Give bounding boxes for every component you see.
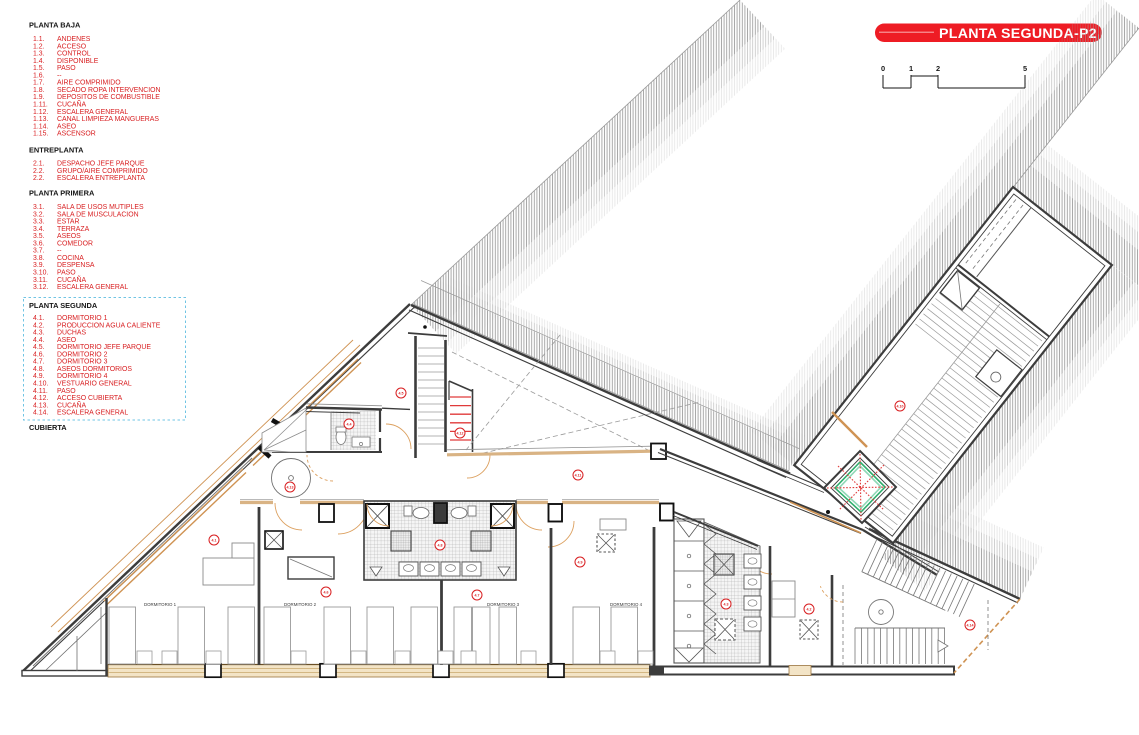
svg-text:1.9.: 1.9. [33,94,45,101]
svg-text:DISPONIBLE: DISPONIBLE [57,58,99,65]
svg-text:4.7: 4.7 [475,593,480,597]
svg-text:1: 1 [909,64,913,73]
svg-text:ASEO: ASEO [57,337,77,344]
svg-text:3.3.: 3.3. [33,219,45,226]
svg-text:4.3: 4.3 [724,602,729,606]
svg-text:1.12.: 1.12. [33,109,48,116]
svg-text:1.7.: 1.7. [33,80,45,87]
svg-text:2: 2 [936,64,940,73]
svg-text:DESPACHO JEFE PARQUE: DESPACHO JEFE PARQUE [57,161,145,168]
svg-text:DUCHAS: DUCHAS [57,330,87,337]
svg-text:4.12: 4.12 [457,431,464,435]
svg-text:1.6.: 1.6. [33,72,45,79]
svg-text:ESCALERA GENERAL: ESCALERA GENERAL [57,410,128,417]
svg-text:PASO: PASO [57,388,76,395]
svg-text:4.9: 4.9 [578,560,583,564]
svg-text:PLANTA BAJA: PLANTA BAJA [29,21,81,30]
svg-text:4.5: 4.5 [399,391,404,395]
svg-text:3.7.: 3.7. [33,248,45,255]
svg-text:4.5.: 4.5. [33,344,45,351]
svg-text:3.11.: 3.11. [33,277,48,284]
svg-text:DORMITORIO 3: DORMITORIO 3 [57,359,108,366]
svg-text:DORMITORIO 3: DORMITORIO 3 [487,602,520,607]
svg-text:ESTAR: ESTAR [57,219,79,226]
svg-text:ASEOS DORMITORIOS: ASEOS DORMITORIOS [57,366,132,373]
svg-text:4.9.: 4.9. [33,373,45,380]
svg-text:5: 5 [1023,64,1027,73]
svg-text:4.7.: 4.7. [33,359,45,366]
svg-text:4.6.: 4.6. [33,351,45,358]
svg-text:1.14.: 1.14. [33,123,48,130]
svg-text:3.12.: 3.12. [33,284,48,291]
svg-text:ASEO: ASEO [57,123,77,130]
svg-text:1.11.: 1.11. [33,102,48,109]
svg-text:COMEDOR: COMEDOR [57,240,93,247]
svg-text:PASO: PASO [57,65,76,72]
svg-text:4.3.: 4.3. [33,330,45,337]
svg-text:CUCAÑA: CUCAÑA [57,275,87,284]
svg-text:4.11: 4.11 [575,473,582,477]
svg-text:3.5.: 3.5. [33,233,45,240]
svg-text:4.8: 4.8 [438,543,443,547]
svg-text:1.3.: 1.3. [33,51,45,58]
svg-text:DORMITORIO 2: DORMITORIO 2 [57,351,108,358]
svg-text:ESCALERA GENERAL: ESCALERA GENERAL [57,284,128,291]
svg-text:2.1.: 2.1. [33,161,45,168]
svg-text:DORMITORIO 1: DORMITORIO 1 [144,602,177,607]
svg-text:DORMITORIO JEFE PARQUE: DORMITORIO JEFE PARQUE [57,344,151,351]
svg-text:CANAL LIMPIEZA MANGUERAS: CANAL LIMPIEZA MANGUERAS [57,116,159,123]
svg-text:1.2.: 1.2. [33,43,45,50]
svg-text:4.4.: 4.4. [33,337,45,344]
svg-text:ASCENSOR: ASCENSOR [57,131,96,138]
svg-text:4.4: 4.4 [347,422,352,426]
svg-text:ANDENES: ANDENES [57,36,91,43]
svg-text:1.15.: 1.15. [33,131,48,138]
svg-text:AIRE COMPRIMIDO: AIRE COMPRIMIDO [57,80,121,87]
svg-text:0: 0 [881,64,885,73]
svg-text:3.2.: 3.2. [33,211,45,218]
svg-text:PLANTA SEGUNDA: PLANTA SEGUNDA [29,301,98,310]
svg-text:4.2.: 4.2. [33,322,45,329]
svg-text:GRUPO/AIRE COMPRIMIDO: GRUPO/AIRE COMPRIMIDO [57,168,148,175]
svg-text:4.10: 4.10 [897,404,904,408]
svg-text:4.14: 4.14 [967,623,974,627]
svg-text:3.9.: 3.9. [33,262,45,269]
svg-text:4.11.: 4.11. [33,388,48,395]
svg-text:1.5.: 1.5. [33,65,45,72]
svg-text:4.8.: 4.8. [33,366,45,373]
svg-text:ESCALERA GENERAL: ESCALERA GENERAL [57,109,128,116]
svg-text:4.14.: 4.14. [33,410,48,417]
svg-text:2.2.: 2.2. [33,168,45,175]
svg-text:CUCAÑA: CUCAÑA [57,100,87,109]
svg-text:PLANTA PRIMERA: PLANTA PRIMERA [29,189,95,198]
svg-text:CONTROL: CONTROL [57,51,91,58]
svg-text:ACCESO: ACCESO [57,43,87,50]
svg-text:DORMITORIO 1: DORMITORIO 1 [57,315,108,322]
svg-text:--: -- [57,248,62,255]
svg-text:4.13.: 4.13. [33,402,48,409]
svg-text:PASO: PASO [57,270,76,277]
svg-text:1.8.: 1.8. [33,87,45,94]
svg-text:DORMITORIO 4: DORMITORIO 4 [57,373,108,380]
svg-text:COCINA: COCINA [57,255,84,262]
svg-text:DORMITORIO 4: DORMITORIO 4 [610,602,643,607]
svg-text:1.1.: 1.1. [33,36,45,43]
svg-text:SECADO ROPA INTERVENCION: SECADO ROPA INTERVENCION [57,87,161,94]
svg-text:--: -- [57,72,62,79]
svg-text:VESTUARIO GENERAL: VESTUARIO GENERAL [57,381,132,388]
svg-text:TERRAZA: TERRAZA [57,226,90,233]
svg-text:ACCESO CUBIERTA: ACCESO CUBIERTA [57,395,123,402]
svg-text:4.10.: 4.10. [33,381,48,388]
svg-text:4.6: 4.6 [324,590,329,594]
svg-text:SALA DE USOS MUTIPLES: SALA DE USOS MUTIPLES [57,204,144,211]
svg-text:DORMITORIO 2: DORMITORIO 2 [284,602,317,607]
svg-text:PRODUCCION AGUA CALIENTE: PRODUCCION AGUA CALIENTE [57,322,161,329]
svg-text:1.13.: 1.13. [33,116,48,123]
svg-text:4.12.: 4.12. [33,395,48,402]
svg-text:CUCAÑA: CUCAÑA [57,400,87,409]
svg-text:4.2: 4.2 [807,607,812,611]
svg-text:SALA DE MUSCULACION: SALA DE MUSCULACION [57,211,139,218]
svg-text:3.10.: 3.10. [33,270,48,277]
svg-text:3.6.: 3.6. [33,240,45,247]
svg-text:CUBIERTA: CUBIERTA [29,423,67,432]
svg-text:ESCALERA ENTREPLANTA: ESCALERA ENTREPLANTA [57,175,145,182]
svg-text:DEPOSITOS DE COMBUSTIBLE: DEPOSITOS DE COMBUSTIBLE [57,94,160,101]
svg-text:4.1.: 4.1. [33,315,45,322]
svg-text:3.8.: 3.8. [33,255,45,262]
svg-text:DESPENSA: DESPENSA [57,262,95,269]
svg-text:ASEOS: ASEOS [57,233,81,240]
svg-text:3.4.: 3.4. [33,226,45,233]
svg-text:2.2.: 2.2. [33,175,45,182]
svg-text:1.4.: 1.4. [33,58,45,65]
svg-text:3.1.: 3.1. [33,204,45,211]
svg-text:4.1: 4.1 [212,538,217,542]
svg-text:4.13: 4.13 [287,485,294,489]
svg-text:ENTREPLANTA: ENTREPLANTA [29,146,84,155]
